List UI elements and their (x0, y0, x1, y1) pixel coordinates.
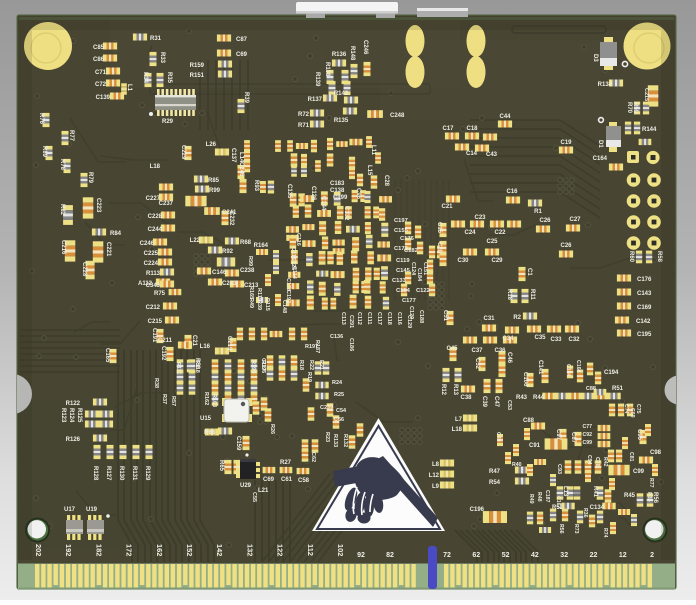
svg-text:C151: C151 (422, 262, 428, 275)
svg-text:C246: C246 (140, 241, 155, 247)
svg-text:R70: R70 (626, 102, 632, 114)
svg-text:C113: C113 (340, 312, 346, 325)
svg-text:C177: C177 (402, 298, 416, 304)
svg-text:C25: C25 (486, 239, 498, 245)
svg-text:32: 32 (560, 552, 568, 559)
svg-text:C92: C92 (582, 432, 592, 438)
svg-text:C215: C215 (643, 88, 649, 101)
svg-text:R26: R26 (269, 424, 275, 434)
svg-text:C45: C45 (446, 346, 458, 352)
svg-text:R56: R56 (558, 524, 564, 534)
svg-text:C77: C77 (582, 424, 592, 430)
svg-text:R34: R34 (142, 72, 148, 84)
svg-text:R92: R92 (222, 249, 234, 255)
svg-text:C167: C167 (555, 496, 561, 509)
svg-text:C35: C35 (534, 335, 546, 341)
svg-text:62: 62 (472, 552, 480, 559)
svg-text:L11: L11 (370, 145, 376, 156)
svg-text:R1: R1 (534, 209, 542, 215)
svg-text:R93: R93 (253, 180, 259, 192)
svg-text:R164: R164 (254, 243, 269, 249)
svg-text:C43: C43 (486, 152, 498, 158)
svg-text:L1: L1 (126, 84, 132, 92)
svg-text:R51: R51 (612, 386, 624, 392)
svg-text:R118: R118 (194, 360, 200, 373)
svg-text:D3: D3 (592, 54, 598, 62)
svg-text:C168: C168 (575, 360, 581, 373)
svg-text:C246: C246 (362, 40, 368, 55)
svg-text:172: 172 (125, 544, 134, 556)
svg-text:R128: R128 (92, 466, 98, 481)
svg-text:C37: C37 (471, 348, 483, 354)
svg-text:C99: C99 (582, 440, 592, 446)
svg-text:L18: L18 (150, 164, 161, 170)
svg-text:R31: R31 (150, 36, 162, 42)
svg-text:2: 2 (650, 552, 654, 559)
svg-text:R40: R40 (512, 462, 522, 468)
svg-text:C228: C228 (148, 214, 163, 220)
svg-text:R82: R82 (59, 204, 65, 216)
svg-text:C211: C211 (158, 338, 173, 344)
svg-text:C91: C91 (529, 443, 541, 449)
svg-text:C19: C19 (560, 140, 572, 146)
svg-text:L8: L8 (432, 462, 440, 468)
svg-text:C122: C122 (416, 288, 430, 294)
svg-text:C186: C186 (348, 338, 354, 351)
svg-text:R25: R25 (334, 392, 344, 398)
svg-text:R37: R37 (161, 394, 167, 404)
svg-text:C195: C195 (637, 332, 652, 338)
svg-text:C194: C194 (604, 370, 619, 376)
svg-text:C112: C112 (356, 312, 362, 325)
svg-text:R159: R159 (190, 63, 205, 69)
svg-text:U29: U29 (240, 483, 252, 489)
svg-text:C129: C129 (406, 315, 412, 328)
svg-text:82: 82 (386, 552, 394, 559)
svg-text:C137: C137 (230, 148, 236, 163)
svg-text:C75: C75 (635, 404, 641, 414)
svg-text:R39: R39 (256, 300, 262, 310)
svg-text:C96: C96 (355, 188, 361, 200)
svg-text:C135: C135 (286, 184, 292, 199)
svg-text:R132: R132 (342, 434, 348, 447)
svg-text:R18: R18 (298, 360, 304, 370)
svg-text:C138: C138 (330, 188, 345, 194)
svg-text:C28: C28 (383, 175, 389, 187)
svg-text:C176: C176 (637, 277, 652, 283)
svg-text:C142: C142 (636, 319, 651, 325)
svg-text:C53: C53 (506, 400, 512, 410)
svg-text:C164: C164 (593, 156, 608, 162)
svg-text:R163: R163 (211, 394, 217, 407)
svg-text:R134: R134 (598, 82, 613, 88)
svg-text:22: 22 (590, 552, 598, 559)
svg-text:C232: C232 (228, 211, 234, 226)
svg-text:R45: R45 (624, 493, 636, 499)
svg-text:C87: C87 (236, 37, 248, 43)
svg-text:C56: C56 (334, 417, 344, 423)
svg-text:R197: R197 (305, 344, 318, 350)
svg-text:C49: C49 (495, 432, 501, 442)
svg-text:C39: C39 (481, 396, 487, 408)
svg-text:C188: C188 (418, 310, 424, 323)
svg-text:C69: C69 (263, 477, 275, 483)
svg-text:U15: U15 (200, 416, 212, 422)
svg-text:C221: C221 (105, 242, 111, 257)
svg-text:R111: R111 (175, 362, 181, 375)
svg-text:R11: R11 (529, 289, 535, 300)
svg-text:122: 122 (276, 544, 285, 556)
svg-text:R130: R130 (118, 466, 124, 481)
svg-text:R33: R33 (159, 52, 165, 64)
svg-text:C196: C196 (470, 507, 485, 513)
svg-text:R135: R135 (334, 118, 349, 124)
svg-text:R89: R89 (41, 146, 47, 158)
svg-text:C24: C24 (464, 230, 476, 236)
svg-text:R68: R68 (204, 430, 216, 436)
svg-text:L18: L18 (452, 427, 463, 433)
svg-text:R139: R139 (314, 72, 320, 87)
svg-text:R23: R23 (324, 432, 330, 442)
svg-text:C136: C136 (330, 334, 343, 340)
svg-text:C16: C16 (506, 189, 518, 195)
svg-text:C117: C117 (260, 358, 266, 371)
svg-text:L26: L26 (206, 142, 217, 148)
svg-text:D1: D1 (597, 140, 603, 148)
svg-text:C239: C239 (320, 405, 333, 411)
svg-text:R77: R77 (68, 130, 74, 142)
svg-text:C69: C69 (236, 52, 248, 58)
svg-text:C155: C155 (394, 228, 409, 234)
svg-text:C159: C159 (235, 436, 241, 451)
svg-text:C22: C22 (494, 230, 506, 236)
svg-text:C28: C28 (436, 242, 442, 254)
svg-text:R72: R72 (298, 112, 310, 118)
svg-text:C88: C88 (523, 418, 535, 424)
svg-text:R78: R78 (59, 159, 65, 171)
svg-text:R29: R29 (162, 119, 174, 125)
svg-text:R133: R133 (332, 434, 338, 447)
svg-text:C88: C88 (586, 386, 596, 392)
svg-text:C132: C132 (343, 206, 349, 221)
svg-text:C26: C26 (560, 243, 572, 249)
svg-text:R27: R27 (280, 460, 292, 466)
svg-text:R190: R190 (250, 360, 256, 373)
svg-text:C74: C74 (623, 404, 629, 414)
svg-text:C27: C27 (569, 217, 581, 223)
svg-text:C72: C72 (95, 82, 107, 88)
svg-text:C244: C244 (148, 227, 163, 233)
svg-text:C118: C118 (386, 312, 392, 325)
svg-text:C146: C146 (212, 270, 227, 276)
svg-text:92: 92 (357, 552, 365, 559)
svg-text:102: 102 (336, 544, 345, 556)
svg-text:C183: C183 (330, 181, 345, 187)
svg-text:C94: C94 (586, 455, 592, 465)
svg-text:R74: R74 (602, 528, 608, 538)
svg-text:R77: R77 (648, 478, 654, 488)
svg-text:182: 182 (94, 544, 103, 556)
svg-text:C93: C93 (556, 464, 562, 474)
svg-text:R124: R124 (68, 408, 74, 423)
svg-text:C182: C182 (404, 248, 418, 254)
svg-text:C215: C215 (148, 319, 163, 325)
svg-text:R73: R73 (573, 524, 579, 534)
svg-text:R44: R44 (533, 395, 545, 401)
svg-text:R119: R119 (256, 288, 262, 301)
svg-text:C61: C61 (281, 477, 293, 483)
svg-text:C116: C116 (396, 312, 402, 325)
svg-text:C216: C216 (60, 240, 66, 255)
svg-text:R113: R113 (146, 271, 161, 277)
svg-text:C229: C229 (180, 145, 186, 160)
svg-text:C52: C52 (474, 358, 480, 370)
svg-text:L22: L22 (190, 238, 201, 244)
svg-text:C29: C29 (491, 258, 503, 264)
svg-text:C87: C87 (570, 432, 576, 444)
svg-text:C238: C238 (240, 268, 255, 274)
svg-text:C51: C51 (442, 310, 448, 322)
svg-text:R129: R129 (144, 466, 150, 481)
svg-text:C99: C99 (633, 469, 645, 475)
svg-text:R123: R123 (60, 408, 66, 423)
svg-text:C106: C106 (522, 372, 528, 387)
svg-text:C199: C199 (333, 195, 348, 201)
svg-text:R2: R2 (513, 315, 521, 321)
svg-text:C165: C165 (104, 348, 110, 363)
svg-text:C133: C133 (392, 278, 407, 284)
svg-text:C154: C154 (396, 288, 411, 294)
svg-text:R48: R48 (536, 492, 542, 502)
svg-text:R12: R12 (440, 384, 446, 396)
svg-text:C134: C134 (590, 505, 605, 511)
svg-text:R39: R39 (243, 92, 249, 104)
svg-text:R138: R138 (324, 62, 330, 77)
svg-text:C343: C343 (146, 283, 161, 289)
svg-text:C36: C36 (494, 348, 506, 354)
svg-text:R84: R84 (110, 231, 122, 237)
svg-text:R131: R131 (131, 466, 137, 481)
svg-text:112: 112 (306, 544, 315, 556)
svg-text:R19: R19 (306, 372, 312, 382)
svg-text:C95: C95 (636, 429, 642, 441)
svg-text:R57: R57 (170, 396, 176, 406)
svg-text:R136: R136 (332, 52, 347, 58)
svg-text:L12: L12 (429, 473, 440, 479)
svg-text:C58: C58 (298, 478, 310, 484)
svg-text:C237: C237 (159, 201, 174, 207)
svg-text:C246: C246 (238, 162, 244, 177)
svg-text:C248: C248 (390, 113, 405, 119)
svg-text:C184: C184 (565, 364, 571, 377)
svg-text:C124: C124 (410, 262, 416, 276)
svg-text:R24: R24 (332, 380, 343, 386)
svg-text:R122: R122 (66, 401, 81, 407)
svg-text:R126: R126 (66, 437, 81, 443)
svg-text:U17: U17 (64, 507, 76, 513)
svg-text:R125: R125 (76, 408, 82, 423)
svg-text:52: 52 (502, 552, 510, 559)
svg-text:L14: L14 (238, 152, 244, 163)
svg-text:42: 42 (531, 552, 539, 559)
svg-text:R49: R49 (528, 494, 534, 504)
svg-text:R42: R42 (602, 457, 608, 467)
svg-text:162: 162 (155, 544, 164, 556)
svg-text:R148: R148 (349, 46, 355, 61)
svg-text:C243: C243 (222, 281, 237, 287)
svg-text:C47: C47 (493, 396, 499, 408)
svg-text:C225: C225 (144, 251, 159, 257)
svg-text:C26: C26 (539, 218, 551, 224)
svg-text:R85: R85 (208, 178, 220, 184)
svg-text:C23: C23 (474, 215, 486, 221)
svg-text:C44: C44 (499, 114, 511, 120)
svg-text:L7: L7 (455, 417, 463, 423)
svg-text:C144: C144 (320, 196, 326, 211)
svg-text:132: 132 (245, 544, 254, 556)
svg-text:L9: L9 (432, 484, 440, 490)
svg-text:R36: R36 (582, 508, 588, 518)
svg-text:R41: R41 (592, 486, 598, 498)
svg-text:12: 12 (619, 552, 627, 559)
svg-text:C85: C85 (93, 45, 105, 51)
svg-text:C97: C97 (555, 429, 561, 441)
svg-text:R142: R142 (334, 91, 349, 97)
svg-text:R47: R47 (489, 469, 501, 475)
svg-text:C17: C17 (442, 126, 454, 132)
svg-text:C212: C212 (146, 305, 161, 311)
svg-text:R115: R115 (264, 298, 270, 311)
svg-text:R99: R99 (247, 256, 253, 266)
svg-text:R13: R13 (452, 384, 458, 396)
svg-text:R99: R99 (209, 188, 221, 194)
svg-text:L15: L15 (366, 165, 372, 176)
svg-text:C119: C119 (396, 258, 410, 264)
svg-text:C14: C14 (466, 151, 478, 157)
svg-text:C71: C71 (95, 70, 107, 76)
svg-text:C219: C219 (226, 336, 232, 351)
svg-text:R75: R75 (154, 291, 166, 297)
svg-text:R137: R137 (308, 97, 323, 103)
svg-text:R144: R144 (642, 127, 657, 133)
svg-text:C21: C21 (441, 204, 453, 210)
svg-text:C18: C18 (466, 126, 478, 132)
svg-text:C145: C145 (396, 268, 411, 274)
svg-text:C60: C60 (629, 408, 635, 418)
svg-text:U19: U19 (86, 507, 98, 513)
svg-text:L13: L13 (562, 486, 568, 497)
svg-text:R38: R38 (153, 378, 159, 388)
svg-text:R43: R43 (516, 395, 528, 401)
svg-text:R22: R22 (308, 360, 314, 370)
svg-text:C192: C192 (160, 346, 166, 361)
svg-text:C15: C15 (436, 222, 442, 234)
svg-text:C33: C33 (550, 337, 562, 343)
svg-text:72: 72 (443, 552, 451, 559)
svg-text:R162: R162 (203, 392, 209, 405)
svg-text:202: 202 (34, 544, 43, 556)
svg-text:C126: C126 (310, 186, 316, 201)
svg-text:152: 152 (185, 544, 194, 556)
svg-text:C117: C117 (376, 312, 382, 325)
svg-text:142: 142 (215, 544, 224, 556)
svg-text:C111: C111 (366, 312, 372, 325)
svg-text:C30: C30 (457, 258, 469, 264)
svg-text:C46: C46 (506, 352, 512, 364)
svg-text:C31: C31 (483, 316, 495, 322)
svg-text:R76: R76 (38, 113, 44, 125)
svg-text:R21: R21 (318, 360, 324, 370)
svg-text:C54: C54 (336, 408, 347, 414)
svg-text:C184: C184 (416, 268, 422, 282)
svg-text:C169: C169 (637, 305, 652, 311)
svg-text:R65: R65 (218, 460, 224, 472)
svg-text:C38: C38 (460, 395, 472, 401)
svg-text:R35: R35 (166, 72, 172, 84)
svg-text:C197: C197 (394, 218, 408, 224)
svg-text:C116: C116 (295, 233, 301, 246)
svg-text:R71: R71 (298, 123, 310, 129)
svg-text:C291: C291 (348, 315, 354, 328)
svg-text:R59: R59 (632, 102, 638, 114)
svg-text:192: 192 (64, 544, 73, 556)
svg-text:R49: R49 (248, 298, 254, 308)
svg-text:L16: L16 (200, 344, 211, 350)
svg-text:C223: C223 (95, 198, 101, 213)
svg-text:C98: C98 (650, 450, 662, 456)
svg-text:L21: L21 (258, 488, 269, 494)
svg-text:C187: C187 (544, 490, 550, 503)
svg-text:R68: R68 (240, 240, 252, 246)
svg-text:C224: C224 (144, 261, 159, 267)
svg-text:C62: C62 (310, 452, 316, 462)
svg-text:C141: C141 (537, 360, 543, 375)
svg-text:C139: C139 (96, 95, 111, 101)
svg-text:C148: C148 (281, 300, 287, 313)
svg-text:R18: R18 (506, 289, 512, 301)
svg-text:C81: C81 (628, 452, 634, 462)
svg-text:C55: C55 (251, 492, 257, 502)
svg-text:R151: R151 (190, 73, 205, 79)
svg-text:R35: R35 (646, 492, 652, 502)
svg-text:C228: C228 (81, 262, 87, 277)
svg-text:R60: R60 (628, 251, 634, 263)
svg-text:C143: C143 (637, 291, 652, 297)
svg-text:C1: C1 (526, 268, 532, 276)
svg-text:C34: C34 (502, 336, 514, 342)
svg-text:R127: R127 (105, 466, 111, 481)
svg-text:R54: R54 (489, 480, 501, 486)
svg-text:C21: C21 (191, 335, 197, 347)
svg-text:C191: C191 (151, 328, 157, 343)
svg-text:C76: C76 (594, 457, 600, 467)
svg-text:C176: C176 (400, 236, 415, 242)
svg-text:C32: C32 (568, 337, 580, 343)
svg-text:R79: R79 (87, 172, 93, 184)
svg-text:C86: C86 (93, 57, 105, 63)
